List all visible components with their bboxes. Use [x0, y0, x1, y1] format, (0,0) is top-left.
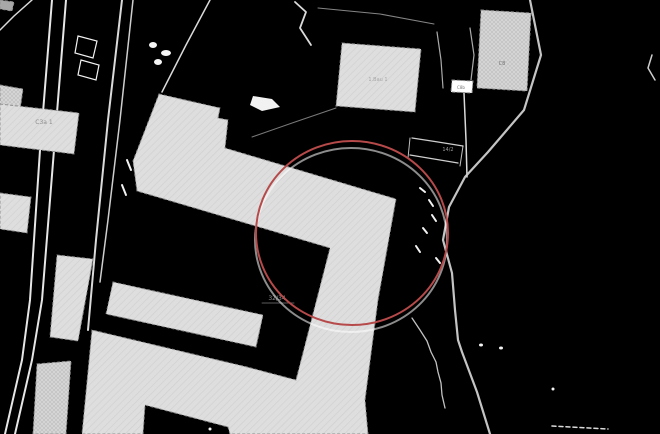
label-c8b: C8b [457, 85, 465, 90]
building-hatched-strip-bottom [33, 361, 71, 434]
white-patch-2 [161, 50, 171, 56]
building-top-right [477, 10, 531, 91]
label-c3a1: C3a 1 [35, 119, 53, 126]
dot-1 [479, 344, 483, 347]
white-patch-1 [149, 42, 157, 48]
map-canvas[interactable]: C3a 11.Bau 1C8C8b14/232/34 [0, 0, 660, 434]
dot-3 [552, 388, 555, 391]
building-small-left [0, 193, 31, 233]
dot-2 [499, 347, 503, 350]
label-c8: C8 [499, 61, 506, 67]
white-patch-3 [154, 59, 162, 65]
label-parcel-14-2: 14/2 [442, 147, 453, 153]
map-viewport[interactable]: C3a 11.Bau 1C8C8b14/232/34 [0, 0, 660, 434]
dot-4 [209, 428, 212, 431]
label-square-building: 1.Bau 1 [368, 77, 387, 83]
